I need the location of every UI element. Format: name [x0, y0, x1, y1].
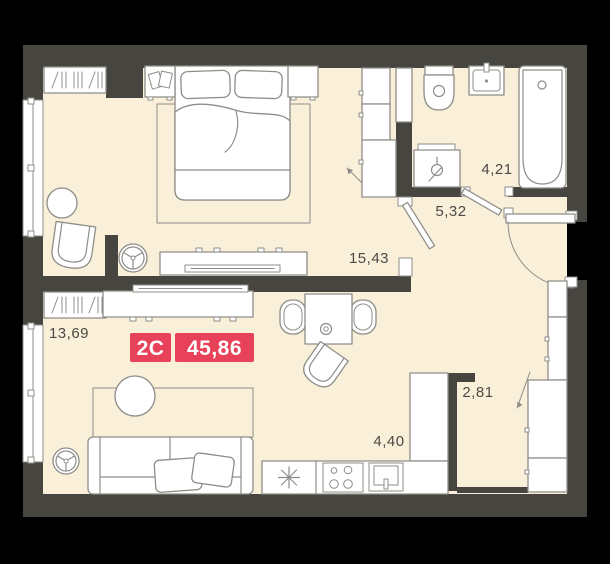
- corridor-cabinet-3: [528, 458, 567, 492]
- coffee-table: [115, 376, 155, 416]
- nightstand-left: [145, 66, 175, 100]
- wall-end-cap: [399, 258, 412, 276]
- hall-cabinet: [396, 68, 412, 122]
- washing-machine: [414, 144, 460, 187]
- room-label-corridor: 2,81: [462, 384, 493, 401]
- hall-wardrobe-1: [362, 68, 390, 104]
- area-badge-label: 45,86: [187, 337, 242, 360]
- hall-wardrobe-3: [362, 140, 396, 197]
- nightstand-right: [288, 66, 318, 100]
- bedroom-hall-wall: [396, 122, 412, 197]
- pillow: [235, 70, 283, 99]
- room-label-kitchen: 4,40: [373, 433, 404, 450]
- double-bed: [175, 66, 290, 200]
- bathtub: [519, 66, 566, 188]
- hall-wardrobe-2: [362, 104, 390, 140]
- fridge-icon: [279, 467, 300, 488]
- floor-plan-canvas: 15,43 13,69 5,32 4,21 2,81 4,40 2С 45,86: [0, 0, 610, 564]
- dining-chair-left: [280, 300, 306, 334]
- wall-pier: [106, 68, 143, 98]
- corridor-cabinet-1: [548, 281, 567, 317]
- fan-icon: [53, 448, 79, 474]
- entry-door-leaf: [506, 214, 575, 223]
- pillow: [181, 70, 231, 99]
- corridor-wall: [448, 373, 457, 491]
- corridor-threshold: [457, 487, 528, 493]
- corridor-wall-stub-top: [448, 373, 475, 382]
- sofa: [88, 437, 253, 494]
- plan-badges: 2С 45,86: [130, 333, 254, 362]
- tv-stand-bedroom: [160, 248, 307, 275]
- bedroom-wardrobe: [44, 67, 106, 93]
- room-label-hall: 5,32: [435, 203, 466, 220]
- book-icon: [158, 71, 172, 88]
- blanket: [175, 104, 290, 200]
- corridor-cabinet-2: [548, 317, 567, 380]
- type-badge-label: 2С: [137, 337, 165, 360]
- stove-icon: [323, 463, 363, 492]
- side-table: [47, 188, 77, 218]
- room-label-bathroom: 4,21: [481, 161, 512, 178]
- bedroom-window: [23, 98, 43, 237]
- toilet: [424, 66, 454, 110]
- floor-plan: 15,43 13,69 5,32 4,21 2,81 4,40 2С 45,86: [0, 0, 610, 564]
- living-window: [23, 323, 43, 463]
- dining-table: [305, 294, 352, 344]
- door-jamb: [505, 187, 513, 196]
- tv-stand-living: [103, 285, 253, 321]
- fan-icon: [119, 244, 147, 272]
- corridor-wardrobe: [528, 380, 567, 458]
- bathroom-wall-left: [408, 187, 462, 197]
- sofa-pillow: [191, 452, 235, 487]
- room-label-living: 13,69: [49, 325, 89, 342]
- bathroom-sink: [469, 63, 504, 95]
- dining-chair-right: [350, 300, 376, 334]
- kitchen-sink-icon: [369, 463, 403, 491]
- niche-stub-wall: [105, 235, 118, 276]
- tub-chair: [50, 221, 96, 270]
- kitchen-cabinet-column: [410, 373, 448, 461]
- room-label-bedroom: 15,43: [349, 250, 389, 267]
- living-wardrobe: [44, 292, 106, 318]
